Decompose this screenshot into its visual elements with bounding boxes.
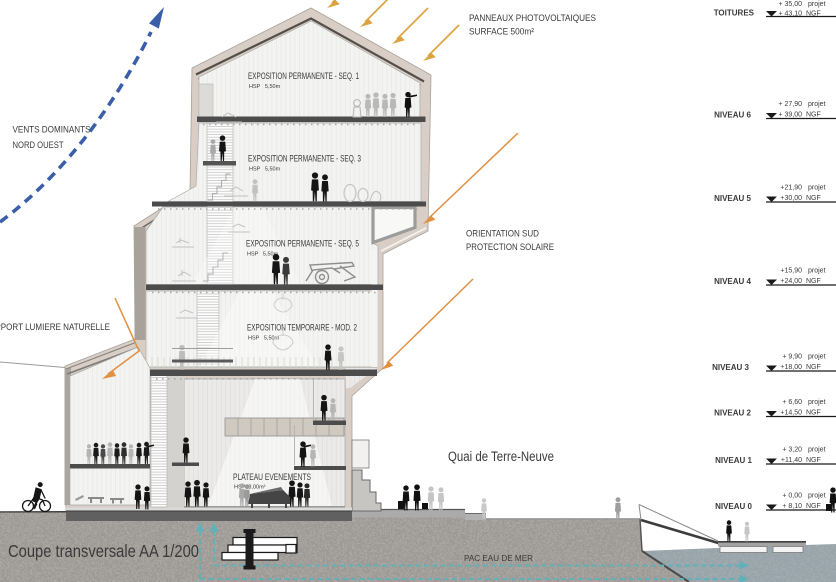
svg-text:+18,00: +18,00 (780, 364, 802, 371)
svg-text:NGF: NGF (806, 364, 821, 371)
svg-text:Coupe transversale AA 1/200: Coupe transversale AA 1/200 (8, 541, 199, 561)
svg-text:projet: projet (808, 185, 826, 192)
svg-text:APPORT LUMIERE NATURELLE: APPORT LUMIERE NATURELLE (0, 322, 110, 333)
svg-text:+14,50: +14,50 (780, 410, 802, 417)
svg-text:HSP 5,50m: HSP 5,50m (249, 167, 281, 173)
svg-text:+ 9,90: + 9,90 (782, 354, 802, 361)
svg-text:PROTECTION SOLAIRE: PROTECTION SOLAIRE (466, 242, 554, 253)
svg-text:+30,00: +30,00 (780, 195, 802, 202)
svg-text:EXPOSITION PERMANENTE - SEQ. 1: EXPOSITION PERMANENTE - SEQ. 1 (248, 71, 359, 81)
svg-text:TOITURES: TOITURES (714, 9, 755, 18)
svg-text:SURFACE 500m²: SURFACE 500m² (469, 27, 534, 38)
svg-text:NGF: NGF (806, 112, 821, 119)
svg-text:PAC EAU DE MER: PAC EAU DE MER (464, 553, 533, 563)
svg-text:+11,40: +11,40 (781, 457, 802, 464)
svg-text:projet: projet (808, 354, 826, 361)
svg-text:PLATEAU EVENEMENTS: PLATEAU EVENEMENTS (233, 472, 311, 482)
svg-text:NGF: NGF (806, 410, 821, 417)
svg-text:projet: projet (808, 101, 826, 108)
svg-text:projet: projet (808, 268, 826, 275)
svg-text:+ 39,00: + 39,00 (778, 112, 802, 119)
svg-text:NGF: NGF (806, 278, 821, 285)
svg-text:NIVEAU 6: NIVEAU 6 (714, 111, 751, 120)
svg-text:ORIENTATION SUD: ORIENTATION SUD (466, 229, 539, 240)
svg-text:EXPOSITION TEMPORAIRE - MOD. 2: EXPOSITION TEMPORAIRE - MOD. 2 (247, 323, 357, 333)
svg-text:NIVEAU 2: NIVEAU 2 (714, 409, 751, 418)
svg-text:+ 8,10: + 8,10 (782, 503, 802, 510)
svg-text:VENTS DOMINANTS: VENTS DOMINANTS (13, 125, 91, 136)
svg-text:projet: projet (808, 1, 826, 8)
svg-text:NORD OUEST: NORD OUEST (13, 140, 64, 151)
svg-text:projet: projet (808, 493, 826, 500)
svg-text:+21,90: +21,90 (780, 185, 802, 192)
svg-text:+ 0,00: + 0,00 (782, 493, 802, 500)
svg-text:EXPOSITION PERMANENTE - SEQ. 5: EXPOSITION PERMANENTE - SEQ. 5 (246, 239, 359, 249)
svg-text:NIVEAU 0: NIVEAU 0 (715, 502, 752, 511)
svg-text:+15,90: +15,90 (780, 268, 802, 275)
svg-text:projet: projet (808, 399, 826, 406)
svg-text:PANNEAUX PHOTOVOLTAIQUES: PANNEAUX PHOTOVOLTAIQUES (469, 13, 596, 24)
svg-text:NGF: NGF (806, 503, 821, 510)
svg-text:NIVEAU 3: NIVEAU 3 (712, 363, 749, 372)
svg-text:+24,00: +24,00 (780, 278, 802, 285)
svg-text:NIVEAU 5: NIVEAU 5 (714, 194, 751, 203)
svg-text:NGF: NGF (806, 457, 821, 464)
svg-text:projet: projet (808, 447, 826, 454)
svg-text:NIVEAU 4: NIVEAU 4 (714, 277, 751, 286)
svg-text:HSP 5,50m: HSP 5,50m (249, 84, 281, 90)
svg-text:+ 6,60: + 6,60 (782, 399, 802, 406)
svg-text:NGF: NGF (806, 195, 821, 202)
svg-text:HSP 8,00m²: HSP 8,00m² (234, 485, 266, 491)
svg-text:+ 35,00: + 35,00 (778, 1, 802, 8)
svg-text:EXPOSITION PERMANENTE - SEQ. 3: EXPOSITION PERMANENTE - SEQ. 3 (248, 154, 361, 164)
svg-text:Quai de Terre-Neuve: Quai de Terre-Neuve (448, 449, 554, 464)
svg-text:+ 3,20: + 3,20 (782, 447, 802, 454)
svg-text:NIVEAU 1: NIVEAU 1 (715, 456, 752, 465)
svg-text:+ 27,90: + 27,90 (778, 101, 802, 108)
